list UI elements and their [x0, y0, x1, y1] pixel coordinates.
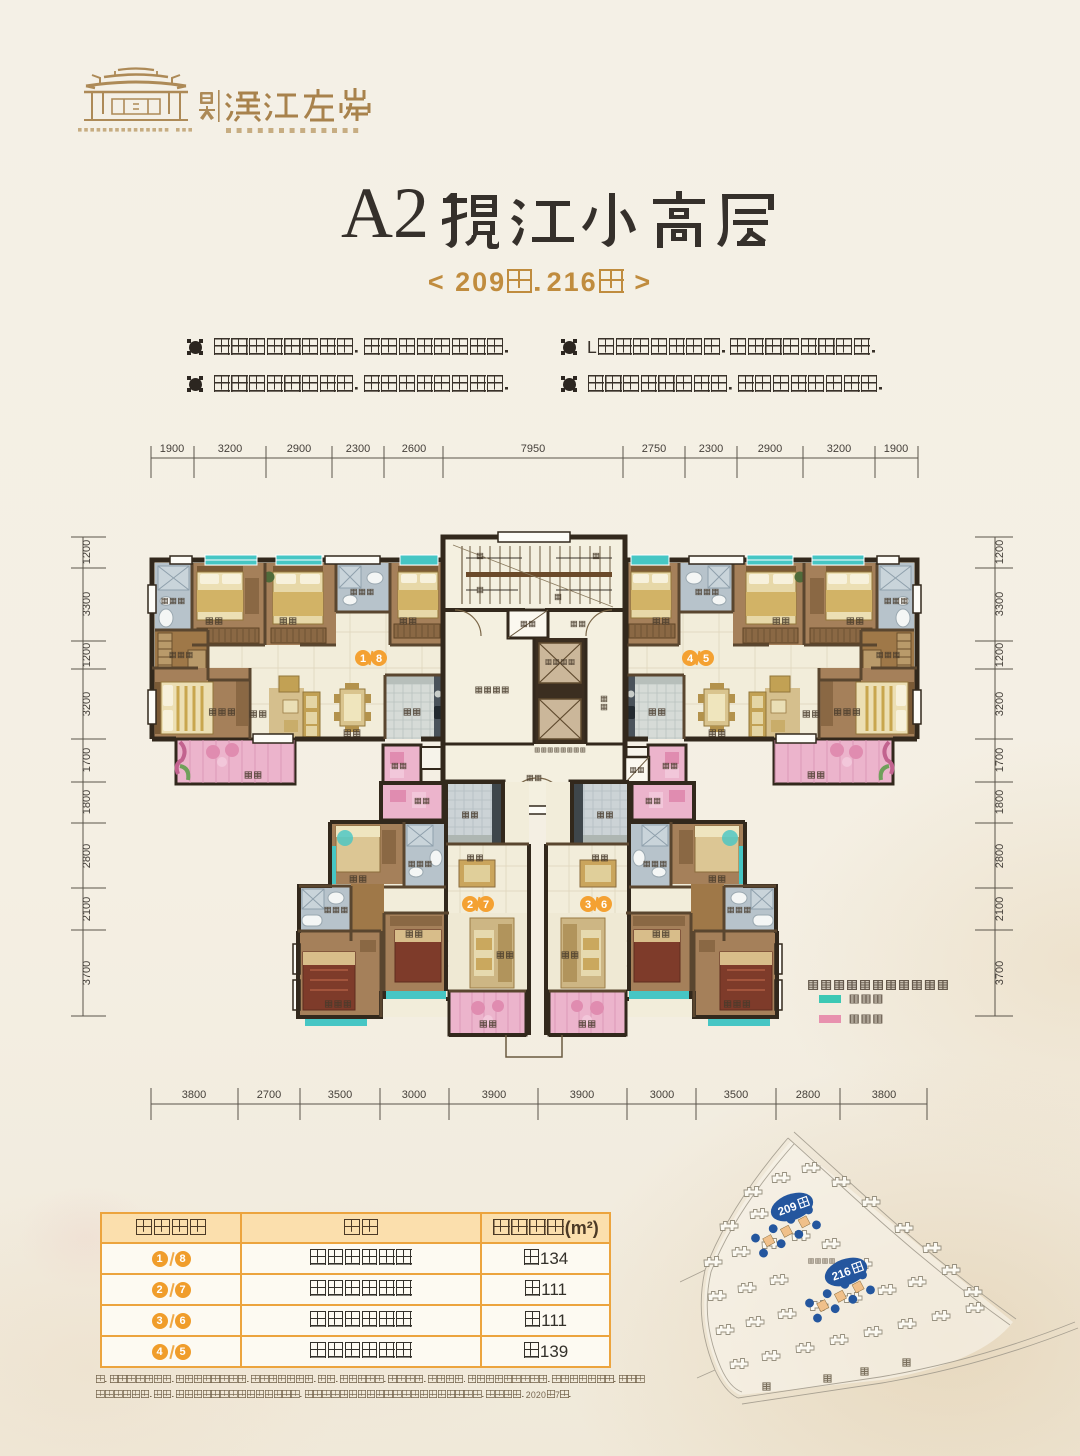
svg-text:3700: 3700: [81, 961, 93, 985]
svg-text:1700: 1700: [81, 748, 93, 772]
svg-text:3800: 3800: [872, 1089, 896, 1101]
svg-text:2100: 2100: [994, 897, 1006, 921]
svg-text:1700: 1700: [994, 748, 1006, 772]
svg-text:2750: 2750: [642, 443, 666, 455]
svg-text:3900: 3900: [570, 1089, 594, 1101]
svg-text:2300: 2300: [699, 443, 723, 455]
svg-text:2300: 2300: [346, 443, 370, 455]
svg-text:1800: 1800: [994, 790, 1006, 814]
svg-text:3200: 3200: [218, 443, 242, 455]
svg-text:3200: 3200: [81, 692, 93, 716]
svg-text:3000: 3000: [402, 1089, 426, 1101]
svg-text:3800: 3800: [182, 1089, 206, 1101]
svg-text:1200: 1200: [81, 540, 93, 564]
svg-text:2900: 2900: [758, 443, 782, 455]
svg-text:3500: 3500: [328, 1089, 352, 1101]
svg-text:4: 4: [687, 653, 694, 665]
svg-text:3300: 3300: [994, 592, 1006, 616]
svg-text:1900: 1900: [884, 443, 908, 455]
svg-text:2: 2: [467, 899, 473, 911]
svg-text:1200: 1200: [994, 540, 1006, 564]
svg-text:2800: 2800: [994, 844, 1006, 868]
svg-text:3000: 3000: [650, 1089, 674, 1101]
svg-text:3200: 3200: [994, 692, 1006, 716]
svg-text:1800: 1800: [81, 790, 93, 814]
svg-text:2600: 2600: [402, 443, 426, 455]
svg-text:2800: 2800: [81, 844, 93, 868]
svg-text:2800: 2800: [796, 1089, 820, 1101]
svg-text:1200: 1200: [994, 643, 1006, 667]
svg-text:1: 1: [360, 653, 366, 665]
svg-text:1200: 1200: [81, 643, 93, 667]
svg-text:6: 6: [601, 899, 607, 911]
svg-text:1900: 1900: [160, 443, 184, 455]
svg-text:2900: 2900: [287, 443, 311, 455]
svg-text:8: 8: [376, 653, 382, 665]
svg-text:3300: 3300: [81, 592, 93, 616]
svg-text:2700: 2700: [257, 1089, 281, 1101]
svg-text:2100: 2100: [81, 897, 93, 921]
svg-text:3200: 3200: [827, 443, 851, 455]
svg-text:5: 5: [703, 653, 709, 665]
svg-text:3900: 3900: [482, 1089, 506, 1101]
svg-text:7: 7: [483, 899, 489, 911]
svg-text:3500: 3500: [724, 1089, 748, 1101]
svg-text:3: 3: [585, 899, 591, 911]
svg-text:7950: 7950: [521, 443, 545, 455]
svg-text:3700: 3700: [994, 961, 1006, 985]
